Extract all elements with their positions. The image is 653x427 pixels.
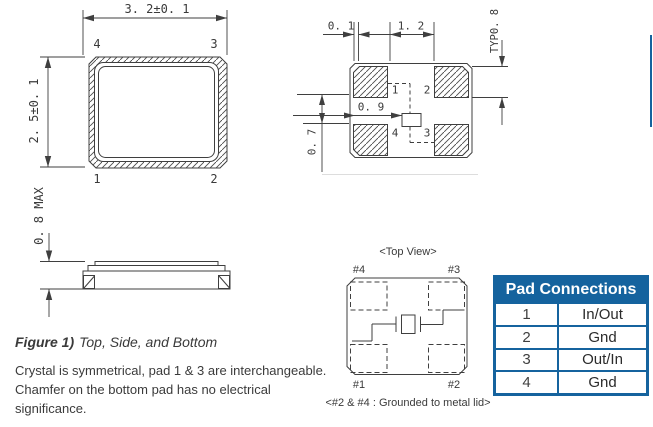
dim-pad-height-label: TYP0. 8 xyxy=(489,9,501,53)
table-row: 4 Gnd xyxy=(496,370,646,393)
side-view-drawing xyxy=(40,233,230,317)
pad3-label: 3 xyxy=(210,37,217,51)
top-view-title: <Top View> xyxy=(379,246,436,258)
table-row: 3 Out/In xyxy=(496,348,646,371)
pad-connection-cell: Out/In xyxy=(559,350,646,371)
figure-description: Crystal is symmetrical, pad 1 & 3 are in… xyxy=(15,361,326,418)
description-line: Crystal is symmetrical, pad 1 & 3 are in… xyxy=(15,361,326,380)
pad4-label: 4 xyxy=(93,37,100,51)
land-pad2-label: 2 xyxy=(424,84,431,97)
land-pad4-label: 4 xyxy=(392,127,399,140)
cropped-table-edge xyxy=(650,35,652,127)
figure-number: Figure 1) xyxy=(15,334,74,350)
dim-width-label: 3. 2±0. 1 xyxy=(124,2,189,16)
pad-connection-cell: In/Out xyxy=(559,304,646,325)
land-pad1-label: 1 xyxy=(392,84,399,97)
pad-connections-table: Pad Connections 1 In/Out 2 Gnd 3 Out/In … xyxy=(493,275,649,396)
pad-connection-cell: Gnd xyxy=(559,372,646,393)
table-row: 2 Gnd xyxy=(496,325,646,348)
land-pattern-drawing xyxy=(293,22,508,175)
pad-number-cell: 3 xyxy=(496,350,559,371)
description-line: Chamfer on the bottom pad has no electri… xyxy=(15,380,326,399)
land-pad3-label: 3 xyxy=(424,127,431,140)
table-row: 1 In/Out xyxy=(496,302,646,325)
tv-pad3-label: #3 xyxy=(448,264,460,276)
tv-pad2-label: #2 xyxy=(448,379,460,391)
figure-title: Top, Side, and Bottom xyxy=(79,334,217,350)
ground-note: <#2 & #4 : Grounded to metal lid> xyxy=(325,397,490,409)
dim-chamfer-offset-label: 0. 9 xyxy=(358,101,385,114)
pad1-label: 1 xyxy=(93,172,100,186)
description-line: significance. xyxy=(15,399,326,418)
figure-caption: Figure 1)Top, Side, and Bottom xyxy=(15,334,217,350)
pad-connection-cell: Gnd xyxy=(559,327,646,348)
pad2-label: 2 xyxy=(210,172,217,186)
figure-canvas: 3. 2±0. 1 4 3 1 2 2. 5±0. 1 0. 8 MAX 0. … xyxy=(0,0,653,427)
tv-pad4-label: #4 xyxy=(353,264,365,276)
pad-number-cell: 2 xyxy=(496,327,559,348)
dim-edge-gap-label: 0. 1 xyxy=(328,20,355,33)
tv-pad1-label: #1 xyxy=(353,379,365,391)
dim-center-gap-label: 1. 2 xyxy=(398,20,425,33)
table-header: Pad Connections xyxy=(496,278,646,302)
dim-height-label: 2. 5±0. 1 xyxy=(27,78,41,143)
package-top-view-drawing xyxy=(40,10,227,168)
internal-top-view-drawing xyxy=(347,278,467,375)
dim-thickness-label: 0. 8 MAX xyxy=(32,187,46,245)
pad-number-cell: 1 xyxy=(496,304,559,325)
pad-number-cell: 4 xyxy=(496,372,559,393)
dim-row-gap-label: 0. 7 xyxy=(306,129,319,156)
